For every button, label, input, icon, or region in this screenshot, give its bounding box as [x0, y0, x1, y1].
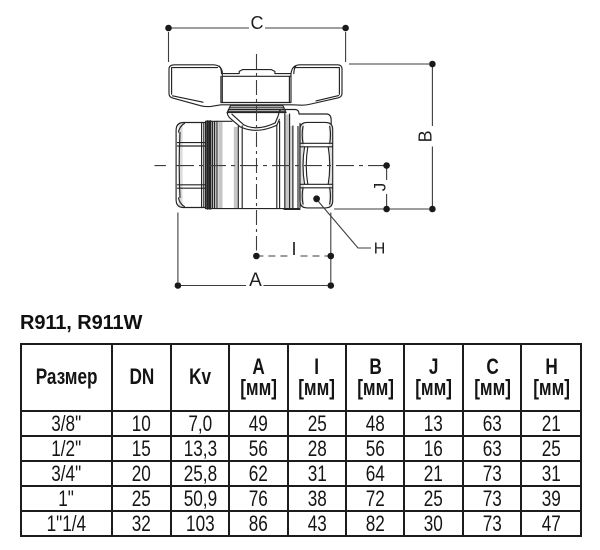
svg-text:H: H	[374, 241, 386, 258]
svg-text:B: B	[416, 130, 436, 142]
svg-text:J: J	[371, 183, 390, 192]
svg-text:C: C	[251, 13, 264, 33]
svg-text:A: A	[249, 270, 262, 291]
svg-text:I: I	[291, 239, 296, 259]
